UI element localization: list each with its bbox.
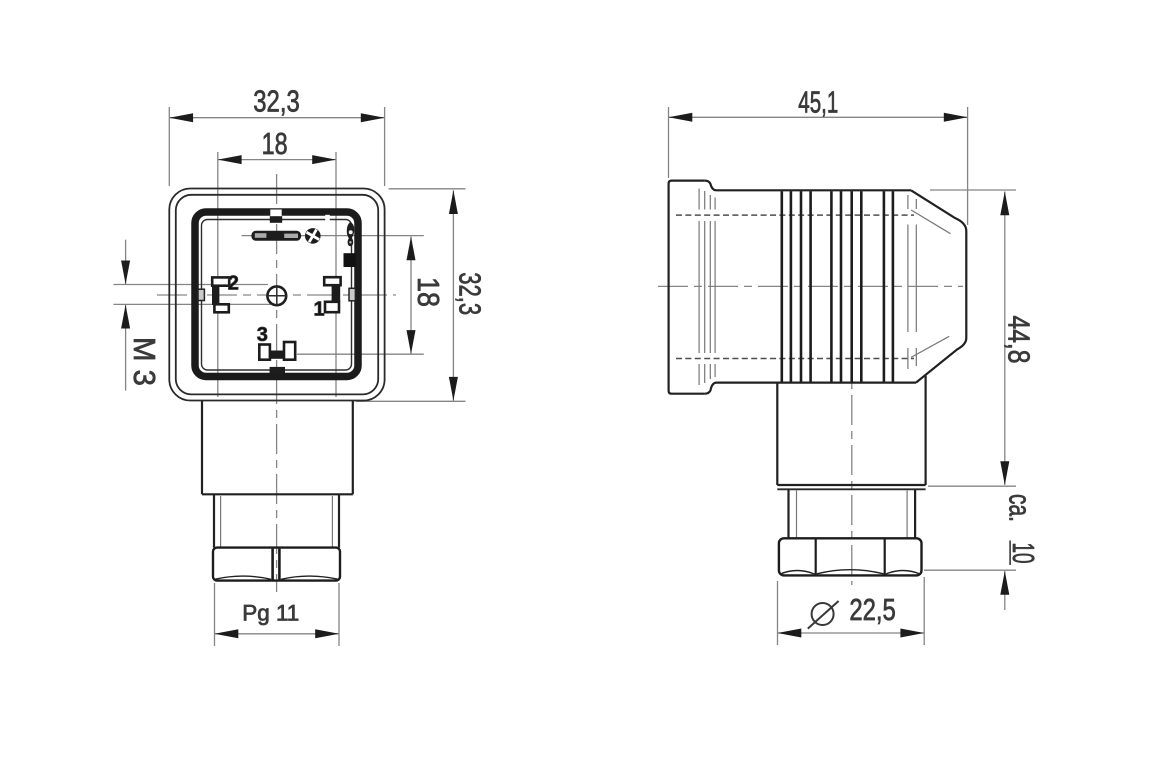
svg-text:ca.: ca. [1003, 494, 1038, 522]
svg-text:Pg 11: Pg 11 [242, 600, 299, 625]
svg-text:M 3: M 3 [127, 337, 162, 386]
svg-text:44,8: 44,8 [1002, 316, 1037, 364]
svg-text:10: 10 [1006, 543, 1041, 564]
svg-text:45,1: 45,1 [798, 84, 838, 119]
svg-text:22,5: 22,5 [849, 592, 896, 627]
svg-text:3: 3 [257, 324, 268, 346]
svg-text:18: 18 [411, 277, 446, 307]
svg-text:32,3: 32,3 [453, 272, 488, 315]
svg-text:32,3: 32,3 [253, 84, 300, 119]
svg-text:1: 1 [313, 299, 324, 321]
svg-text:18: 18 [262, 126, 288, 161]
svg-text:2: 2 [228, 273, 239, 295]
